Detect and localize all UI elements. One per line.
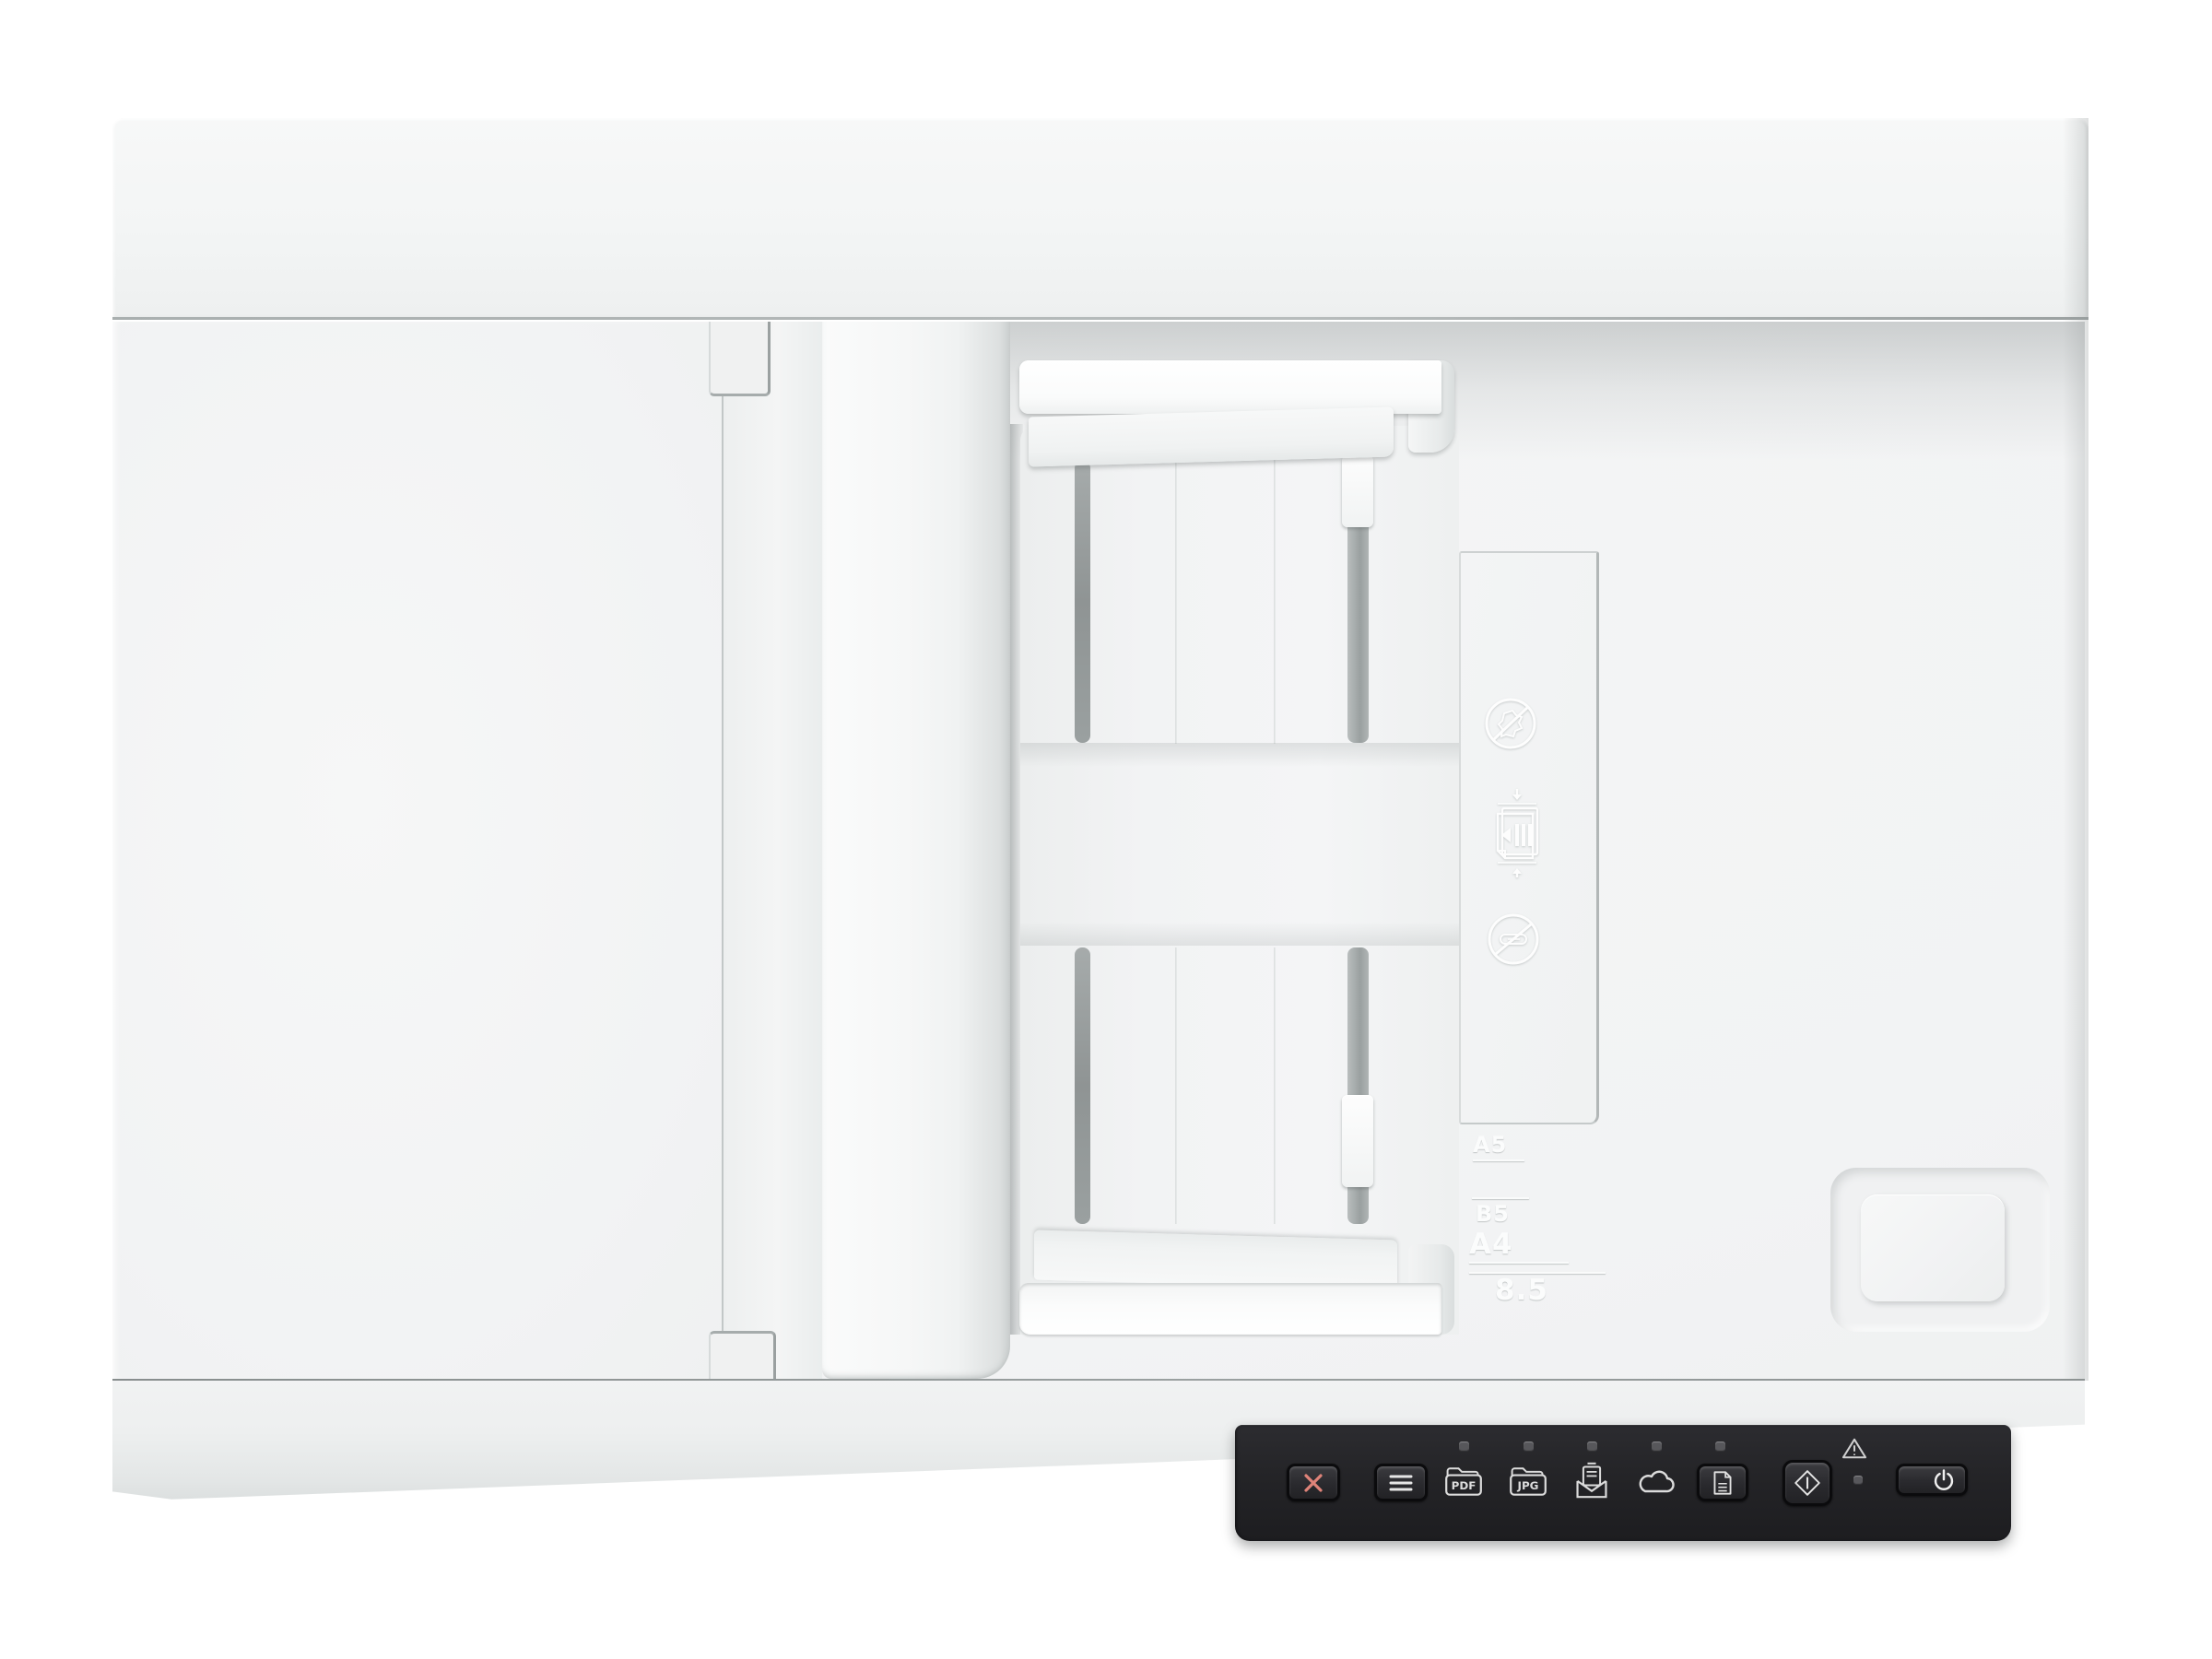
document-led [1715,1441,1725,1452]
paper-guide-handle[interactable] [1342,455,1373,527]
guide-slot [1075,461,1090,743]
flatbed-lid [112,322,724,1379]
tray-seam [1175,458,1177,744]
folder-pdf-icon: PDF [1443,1465,1484,1498]
scanner-top-cover [112,118,2088,317]
input-paper-stop [1019,360,1441,414]
paper-guide-handle[interactable] [1342,1095,1373,1187]
tray-bridge-shadow [1020,743,1459,767]
tray-seam [1274,458,1276,744]
load-paper-stack-icon [1477,789,1558,877]
guide-slot [1075,947,1090,1224]
paper-size-a4: A4 [1469,1228,1513,1261]
scan-to-cloud-button[interactable] [1636,1468,1677,1494]
power-button[interactable] [1896,1464,1968,1496]
svg-text:JPG: JPG [1517,1479,1539,1492]
start-diamond-icon [1793,1468,1822,1498]
lid-hinge-strip [724,322,822,1379]
paper-size-a5: A5 [1473,1132,1507,1158]
paper-size-b5: B5 [1476,1201,1510,1227]
body-right-edge [2063,118,2088,1381]
tray-bridge-shadow [1020,922,1459,946]
tray-seam [1175,947,1177,1224]
start-scan-button[interactable] [1783,1460,1832,1506]
body-recess-pad [1861,1194,2005,1301]
warning-led [1853,1476,1863,1485]
output-paper-stop [1019,1283,1441,1335]
warning-triangle-icon [1841,1437,1867,1460]
cancel-button[interactable] [1287,1464,1340,1501]
pdf-led [1459,1441,1469,1452]
no-crumpled-paper-icon [1482,695,1539,752]
email-led [1587,1441,1597,1452]
cloud-icon [1636,1468,1677,1494]
lid-hinge-bottom [709,1331,776,1382]
tray-seam [1274,947,1276,1224]
cloud-led [1652,1441,1662,1452]
output-paper-stop-front [1034,1230,1397,1289]
adf-left-rail [822,322,1010,1379]
size-tick [1472,1197,1529,1199]
menu-lines-icon [1388,1473,1414,1493]
scan-to-pdf-button[interactable]: PDF [1443,1465,1484,1498]
scan-document-button[interactable] [1697,1464,1748,1501]
scan-to-jpg-button[interactable]: JPG [1508,1465,1548,1498]
lid-hinge-top [709,322,771,396]
scan-to-email-button[interactable] [1573,1461,1610,1500]
email-envelope-icon [1573,1461,1610,1500]
jpg-led [1524,1441,1534,1452]
size-tick [1473,1159,1524,1161]
no-paperclips-icon [1485,911,1542,968]
paper-size-letter: 8.5 [1495,1274,1548,1307]
document-icon [1712,1470,1734,1496]
input-paper-stop-front [1029,406,1394,466]
svg-text:PDF: PDF [1452,1479,1477,1492]
size-tick [1469,1262,1569,1264]
folder-jpg-icon: JPG [1508,1465,1548,1498]
power-icon [1932,1468,1956,1492]
control-panel: PDF JPG [1235,1425,2011,1541]
scanner-product-photo: A5 B5 A4 8.5 PDF [0,0,2212,1659]
x-cancel-icon [1302,1472,1324,1494]
menu-button[interactable] [1374,1464,1428,1501]
